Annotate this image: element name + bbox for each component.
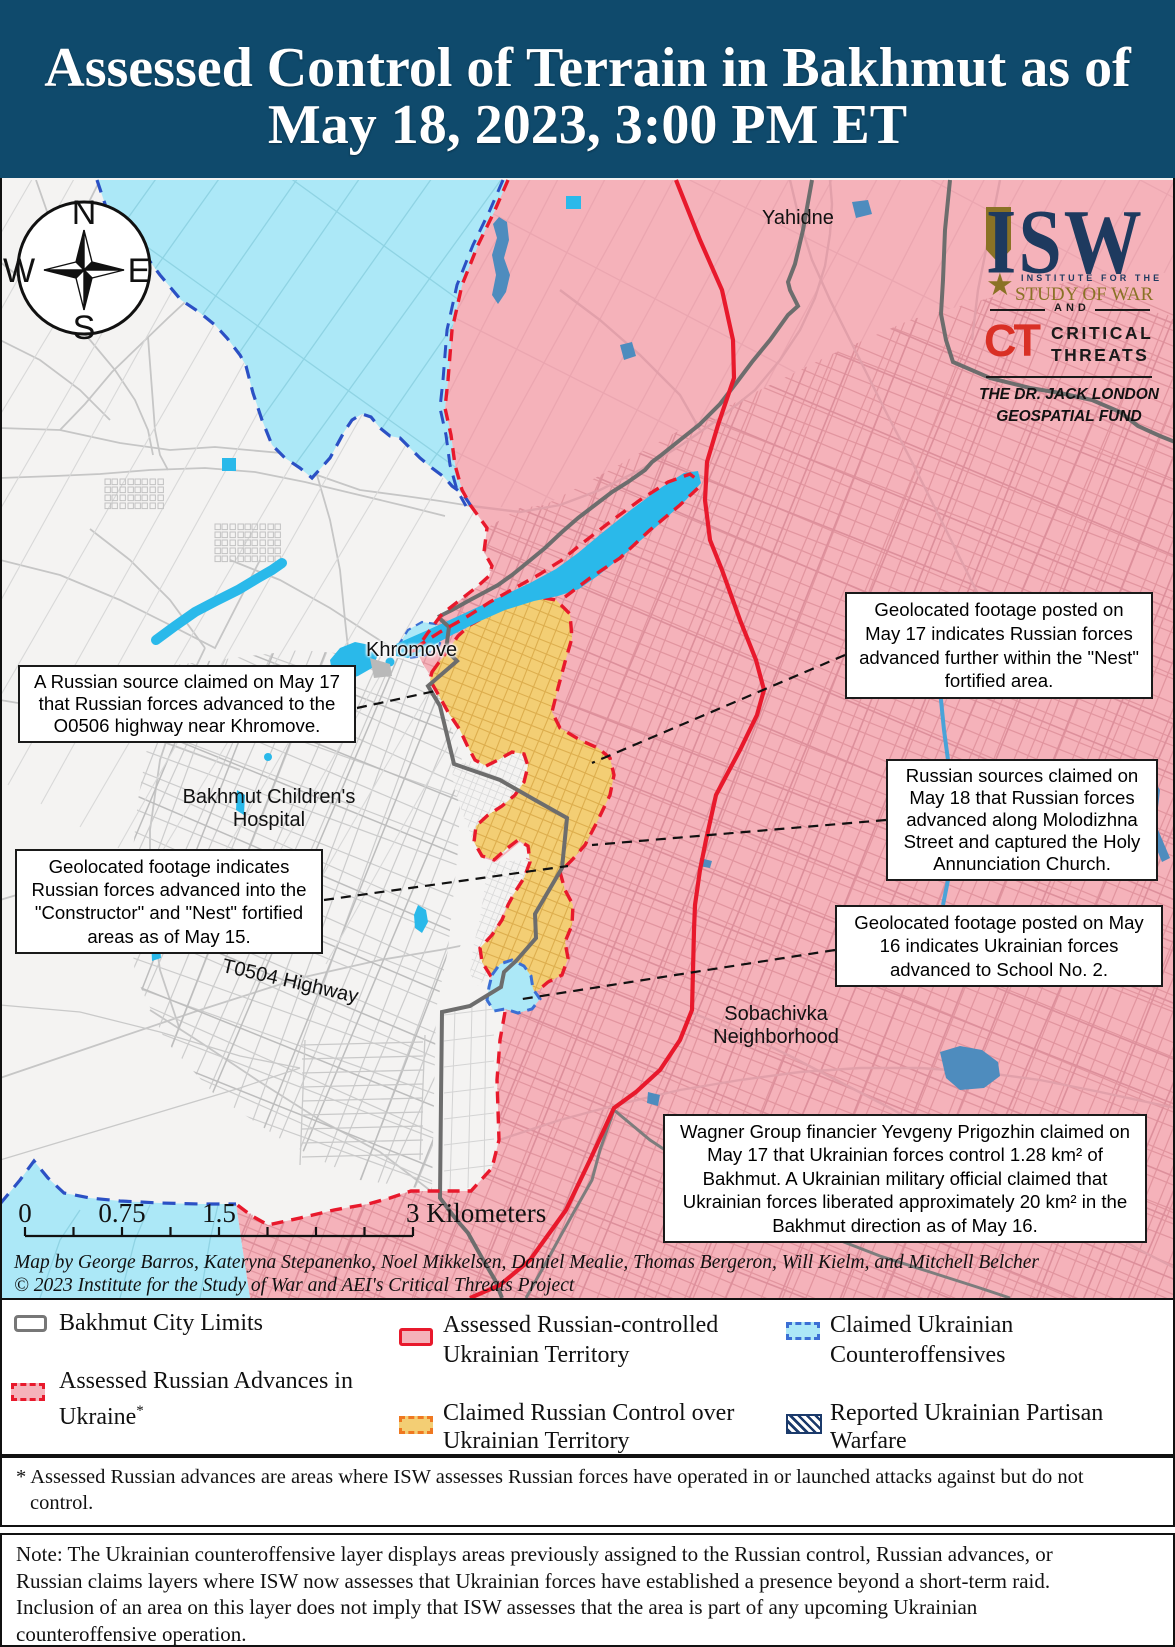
svg-text:S: S <box>73 309 96 347</box>
svg-text:E: E <box>128 252 151 290</box>
svg-text:N: N <box>72 194 97 232</box>
svg-text:1.5: 1.5 <box>202 1198 236 1228</box>
svg-text:0.75: 0.75 <box>98 1198 145 1228</box>
svg-text:3 Kilometers: 3 Kilometers <box>406 1198 546 1228</box>
svg-text:W: W <box>3 252 35 290</box>
svg-text:0: 0 <box>18 1198 32 1228</box>
